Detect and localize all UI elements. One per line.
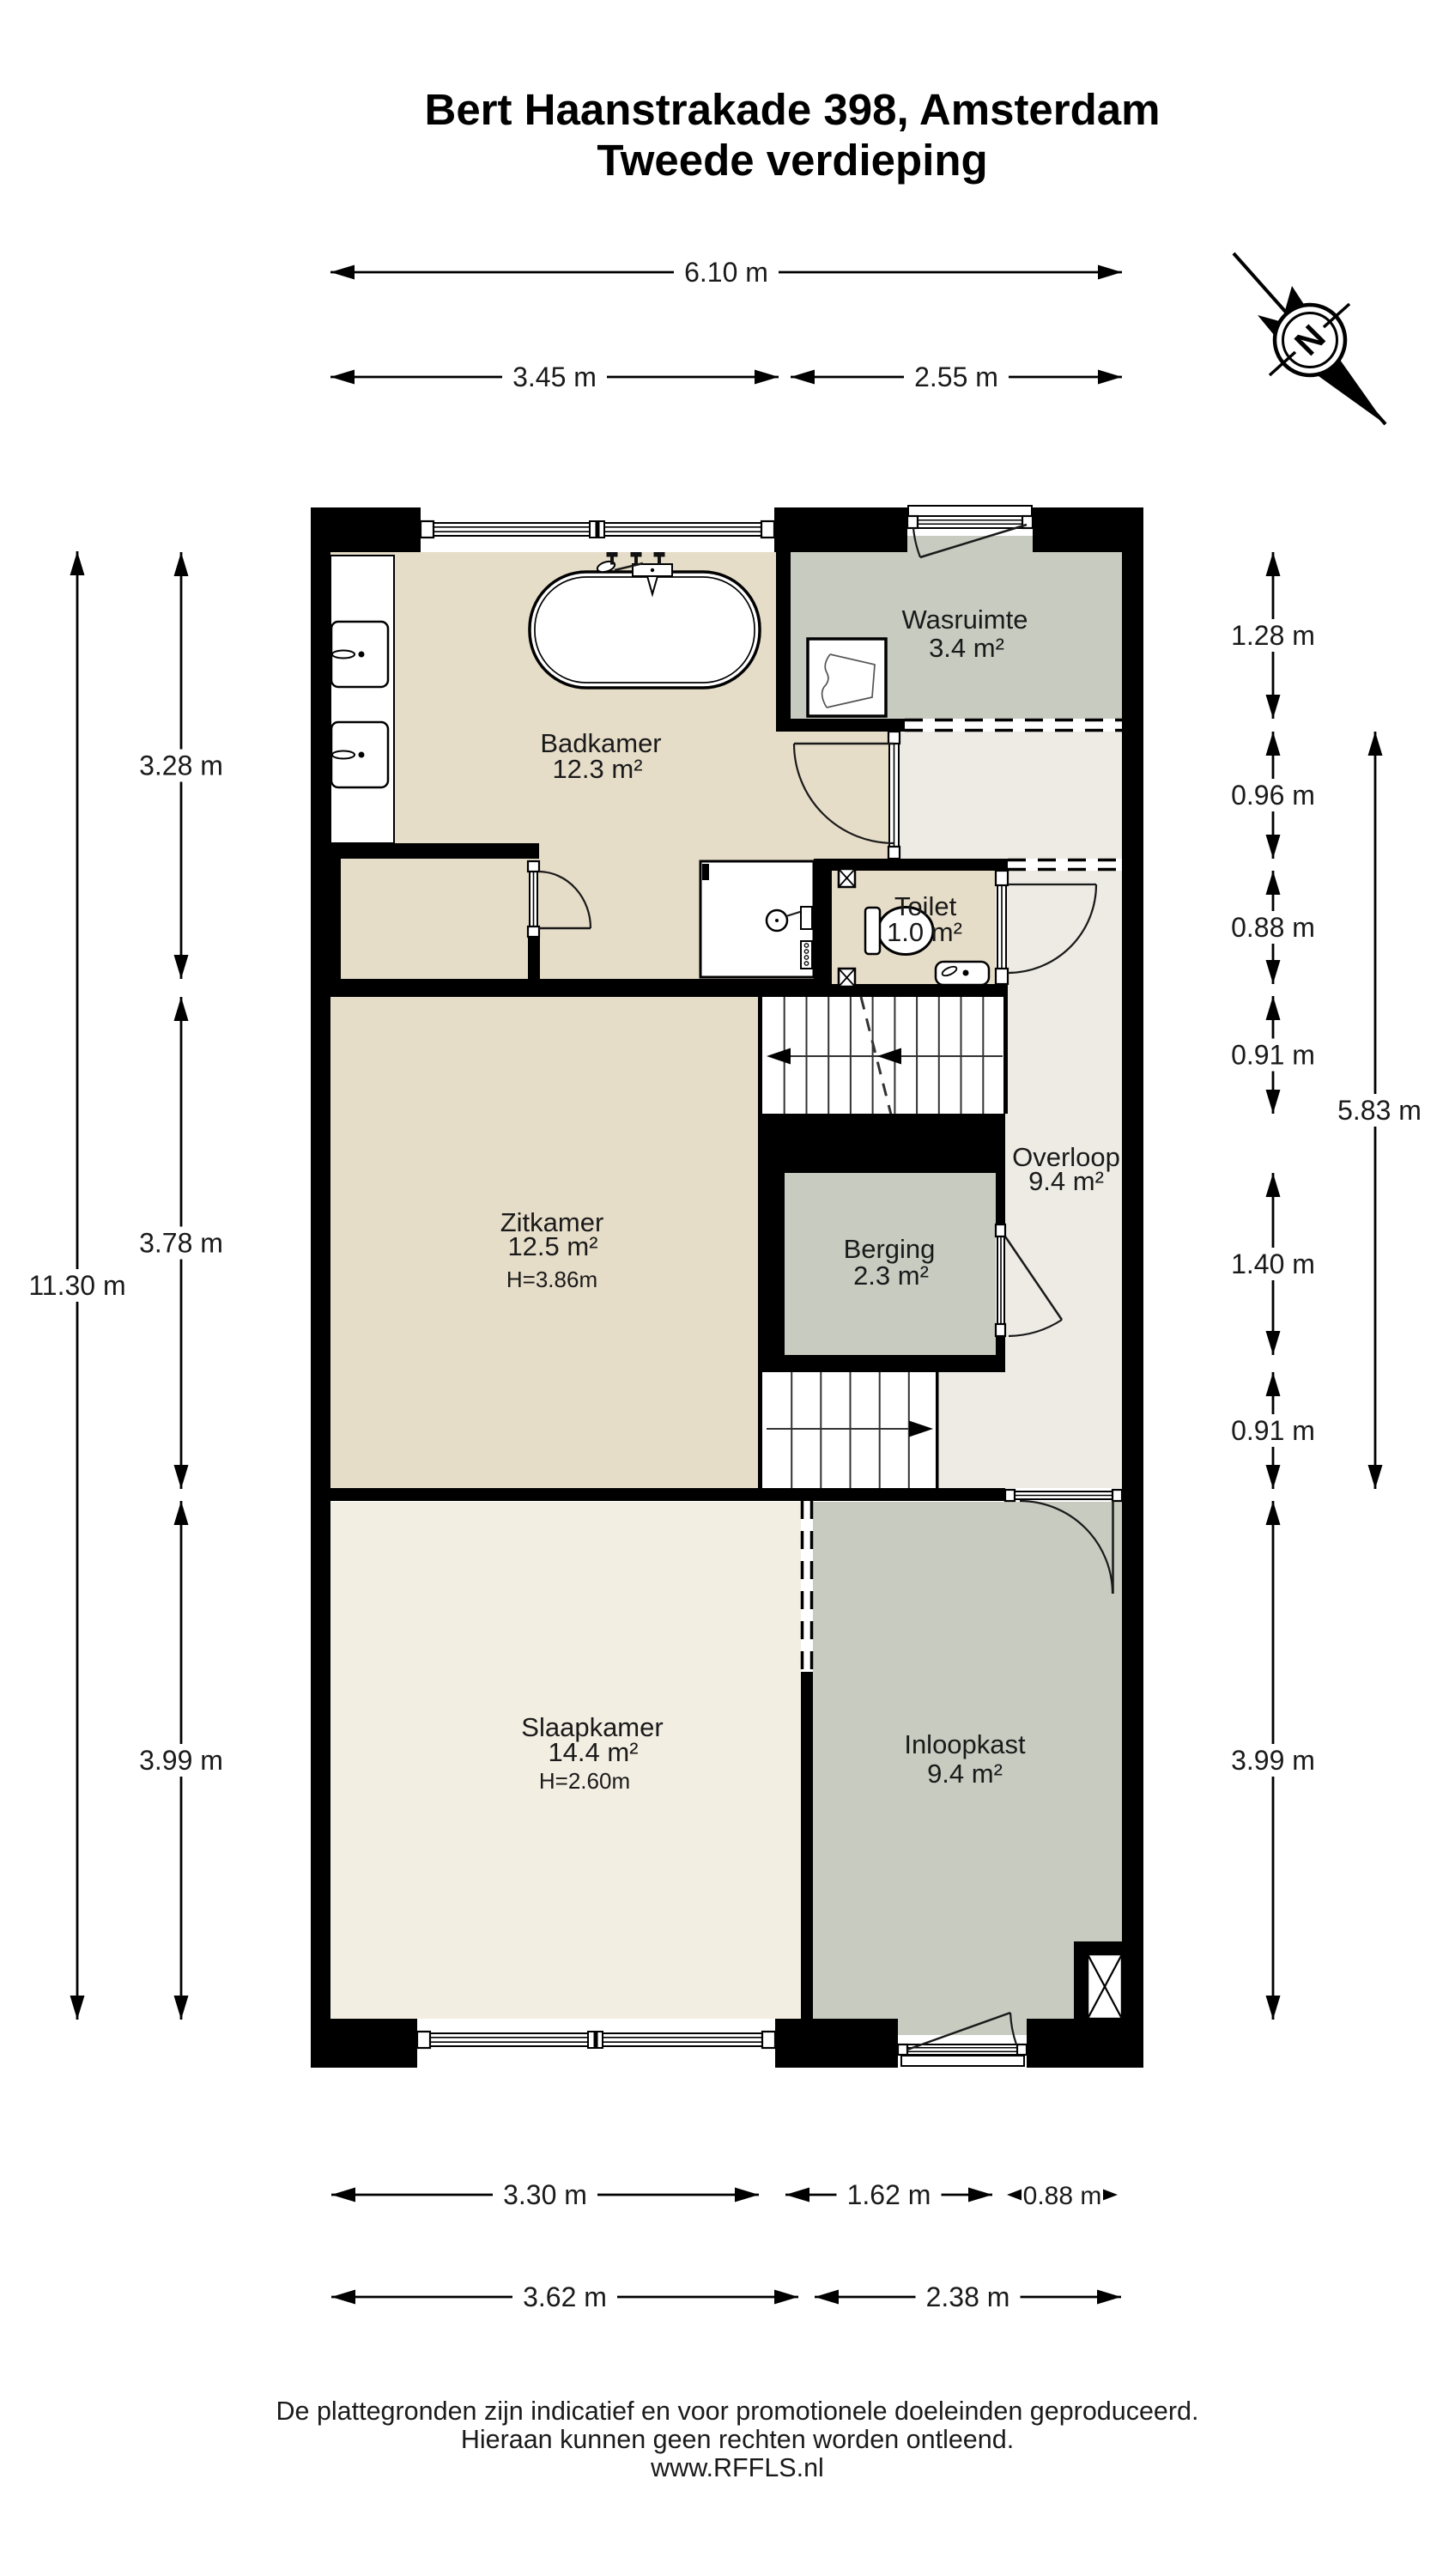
- svg-text:9.4 m²: 9.4 m²: [1028, 1166, 1104, 1196]
- svg-text:1.28 m: 1.28 m: [1231, 620, 1315, 651]
- svg-text:0.96 m: 0.96 m: [1231, 780, 1315, 811]
- svg-text:3.62 m: 3.62 m: [523, 2281, 607, 2312]
- svg-text:2.55 m: 2.55 m: [914, 361, 998, 392]
- svg-text:3.45 m: 3.45 m: [512, 361, 597, 392]
- svg-text:H=3.86m: H=3.86m: [506, 1267, 597, 1292]
- svg-text:Tweede verdieping: Tweede verdieping: [597, 136, 987, 185]
- svg-text:H=2.60m: H=2.60m: [539, 1768, 630, 1794]
- svg-text:9.4 m²: 9.4 m²: [927, 1759, 1003, 1789]
- svg-text:1.0 m²: 1.0 m²: [887, 917, 962, 947]
- svg-text:3.78 m: 3.78 m: [139, 1228, 223, 1259]
- svg-text:Hieraan kunnen geen rechten wo: Hieraan kunnen geen rechten worden ontle…: [461, 2425, 1014, 2454]
- svg-text:3.4 m²: 3.4 m²: [929, 633, 1004, 663]
- svg-text:2.38 m: 2.38 m: [926, 2281, 1010, 2312]
- svg-text:5.83 m: 5.83 m: [1337, 1095, 1422, 1126]
- svg-text:Wasruimte: Wasruimte: [902, 605, 1028, 635]
- svg-text:1.62 m: 1.62 m: [847, 2179, 931, 2210]
- svg-text:0.91 m: 0.91 m: [1231, 1040, 1315, 1071]
- svg-text:3.99 m: 3.99 m: [1231, 1745, 1315, 1776]
- svg-text:6.10 m: 6.10 m: [684, 257, 768, 288]
- svg-text:12.3 m²: 12.3 m²: [552, 754, 642, 784]
- svg-text:Bert Haanstrakade 398, Amsterd: Bert Haanstrakade 398, Amsterdam: [424, 85, 1160, 134]
- svg-text:3.99 m: 3.99 m: [139, 1745, 223, 1776]
- svg-text:2.3 m²: 2.3 m²: [853, 1261, 929, 1291]
- svg-text:Inloopkast: Inloopkast: [904, 1729, 1026, 1759]
- svg-text:3.28 m: 3.28 m: [139, 750, 223, 781]
- svg-text:0.88 m: 0.88 m: [1023, 2182, 1102, 2210]
- svg-text:Berging: Berging: [844, 1234, 936, 1264]
- svg-text:11.30 m: 11.30 m: [28, 1270, 125, 1301]
- svg-text:0.91 m: 0.91 m: [1231, 1415, 1315, 1446]
- svg-text:12.5 m²: 12.5 m²: [507, 1231, 597, 1261]
- svg-text:De plattegronden zijn indicati: De plattegronden zijn indicatief en voor…: [276, 2397, 1198, 2426]
- svg-text:3.30 m: 3.30 m: [503, 2179, 587, 2210]
- svg-text:www.RFFLS.nl: www.RFFLS.nl: [650, 2453, 824, 2482]
- svg-text:0.88 m: 0.88 m: [1231, 912, 1315, 943]
- svg-text:14.4 m²: 14.4 m²: [548, 1737, 638, 1767]
- svg-text:1.40 m: 1.40 m: [1231, 1249, 1315, 1279]
